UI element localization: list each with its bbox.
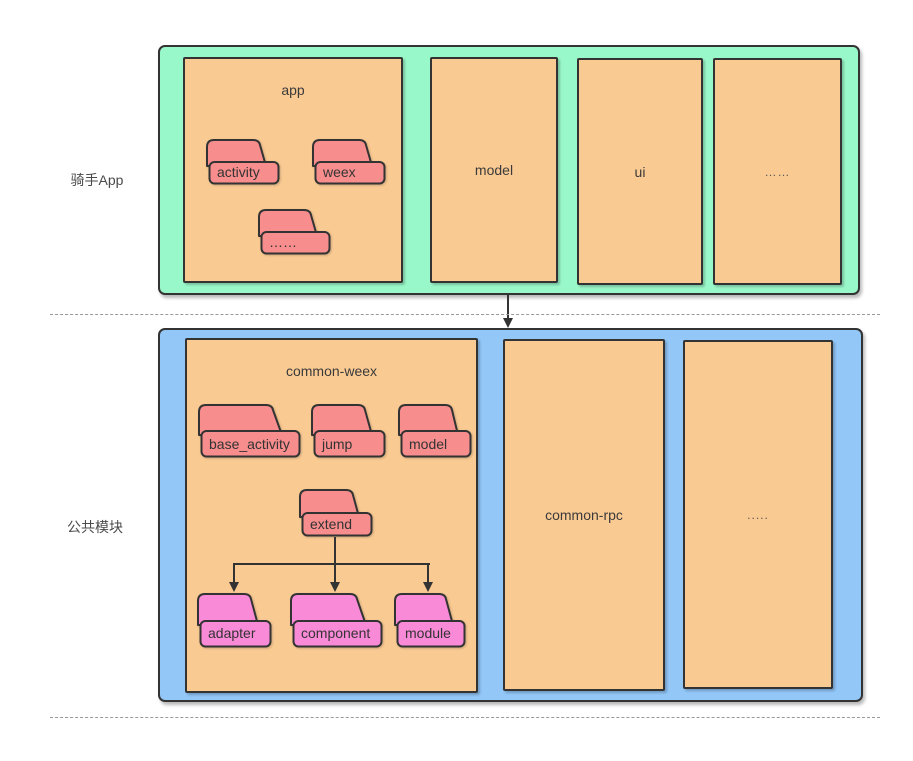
folder-jump-label: jump xyxy=(322,431,383,456)
folder-weex-label: weex xyxy=(323,162,383,183)
top-more-box-title: …… xyxy=(715,60,840,283)
folder-extend-label: extend xyxy=(310,513,370,535)
connector-line-to-module xyxy=(427,565,429,583)
rider-app-section-label: 骑手App xyxy=(37,170,157,190)
common-weex-box-title: common-weex xyxy=(187,363,476,379)
folder-base-activity-label: base_activity xyxy=(209,431,298,456)
divider-dashed-top xyxy=(50,314,880,315)
connector-line-to-component xyxy=(334,565,336,583)
folder-model: model xyxy=(396,402,472,458)
app-box-title: app xyxy=(185,82,401,98)
common-module-section-label: 公共模块 xyxy=(35,517,155,537)
common-module-container: common-weex base_activity jump model ext… xyxy=(158,328,863,702)
folder-model-label: model xyxy=(409,431,469,456)
connector-line-extend-branch xyxy=(233,563,430,565)
folder-jump: jump xyxy=(309,402,386,458)
folder-app-more: …… xyxy=(256,207,331,255)
architecture-diagram: 骑手App 公共模块 app activity weex …… model ui xyxy=(0,0,913,761)
arrowhead-down-icon xyxy=(503,318,513,328)
module-box-bottom-more: ..... xyxy=(683,340,833,689)
module-box-common-rpc: common-rpc xyxy=(503,339,665,691)
divider-dashed-bottom xyxy=(50,717,880,718)
folder-activity-label: activity xyxy=(217,162,277,183)
folder-adapter-label: adapter xyxy=(208,621,269,646)
connector-line-extend-stem xyxy=(334,537,336,565)
module-box-app: app activity weex …… xyxy=(183,57,403,283)
connector-line-to-adapter xyxy=(233,565,235,583)
folder-activity: activity xyxy=(204,137,280,185)
common-rpc-box-title: common-rpc xyxy=(505,341,663,689)
folder-component-label: component xyxy=(301,621,380,646)
module-box-ui: ui xyxy=(577,58,703,285)
folder-weex: weex xyxy=(310,137,386,185)
folder-base-activity: base_activity xyxy=(196,402,301,458)
folder-component: component xyxy=(288,591,383,648)
folder-module: module xyxy=(392,591,466,648)
rider-app-container: app activity weex …… model ui …… xyxy=(158,45,860,295)
module-box-top-more: …… xyxy=(713,58,842,285)
ui-box-title: ui xyxy=(579,60,701,283)
module-box-model: model xyxy=(430,57,558,283)
folder-app-more-label: …… xyxy=(269,232,328,253)
model-box-title: model xyxy=(432,59,556,281)
bottom-more-box-title: ..... xyxy=(685,342,831,687)
folder-module-label: module xyxy=(405,621,463,646)
module-box-common-weex: common-weex base_activity jump model ext… xyxy=(185,338,478,693)
connector-line-model-to-common xyxy=(507,295,509,319)
folder-adapter: adapter xyxy=(195,591,272,648)
folder-extend: extend xyxy=(297,487,373,537)
